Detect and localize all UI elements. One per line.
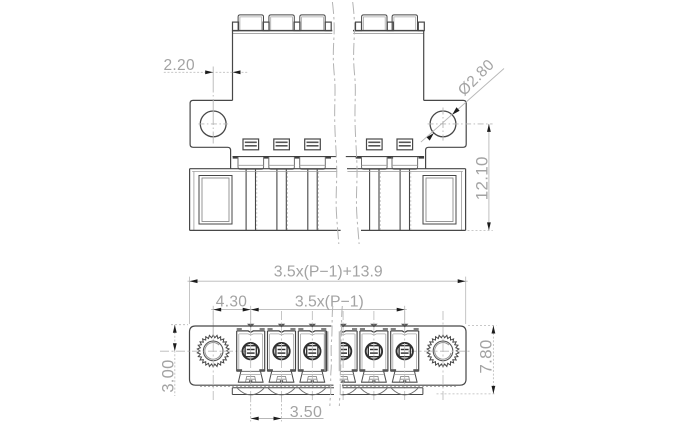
svg-text:12.10: 12.10: [473, 156, 492, 200]
svg-text:4.30: 4.30: [216, 294, 247, 311]
svg-text:3.50: 3.50: [290, 404, 322, 421]
svg-text:3.5x(P−1)+13.9: 3.5x(P−1)+13.9: [274, 263, 383, 280]
svg-text:2.20: 2.20: [164, 57, 195, 74]
svg-text:3.00: 3.00: [159, 359, 177, 392]
svg-text:3.5x(P−1): 3.5x(P−1): [295, 293, 364, 310]
svg-text:7.80: 7.80: [476, 339, 495, 373]
